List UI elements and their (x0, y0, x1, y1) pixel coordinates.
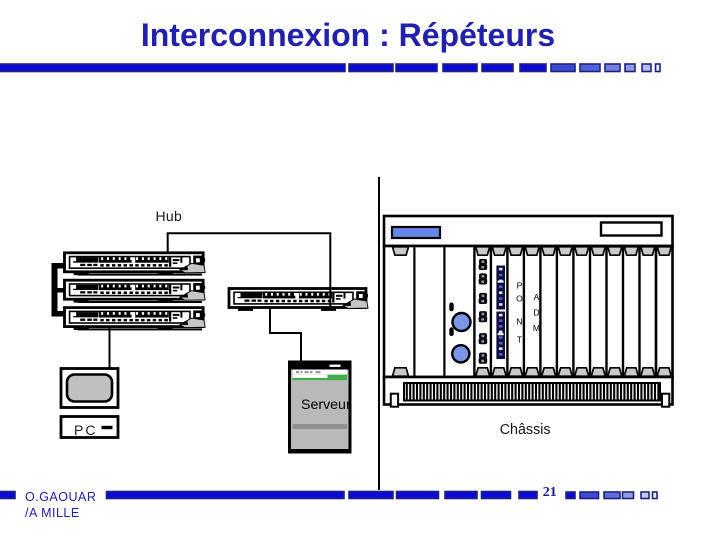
svg-text:N: N (516, 317, 522, 327)
svg-text:M: M (533, 323, 540, 333)
svg-text:T: T (517, 335, 523, 345)
svg-text:A: A (534, 292, 540, 302)
svg-text:P: P (517, 281, 523, 291)
svg-text:O: O (516, 294, 523, 304)
svg-text:D: D (533, 308, 539, 318)
